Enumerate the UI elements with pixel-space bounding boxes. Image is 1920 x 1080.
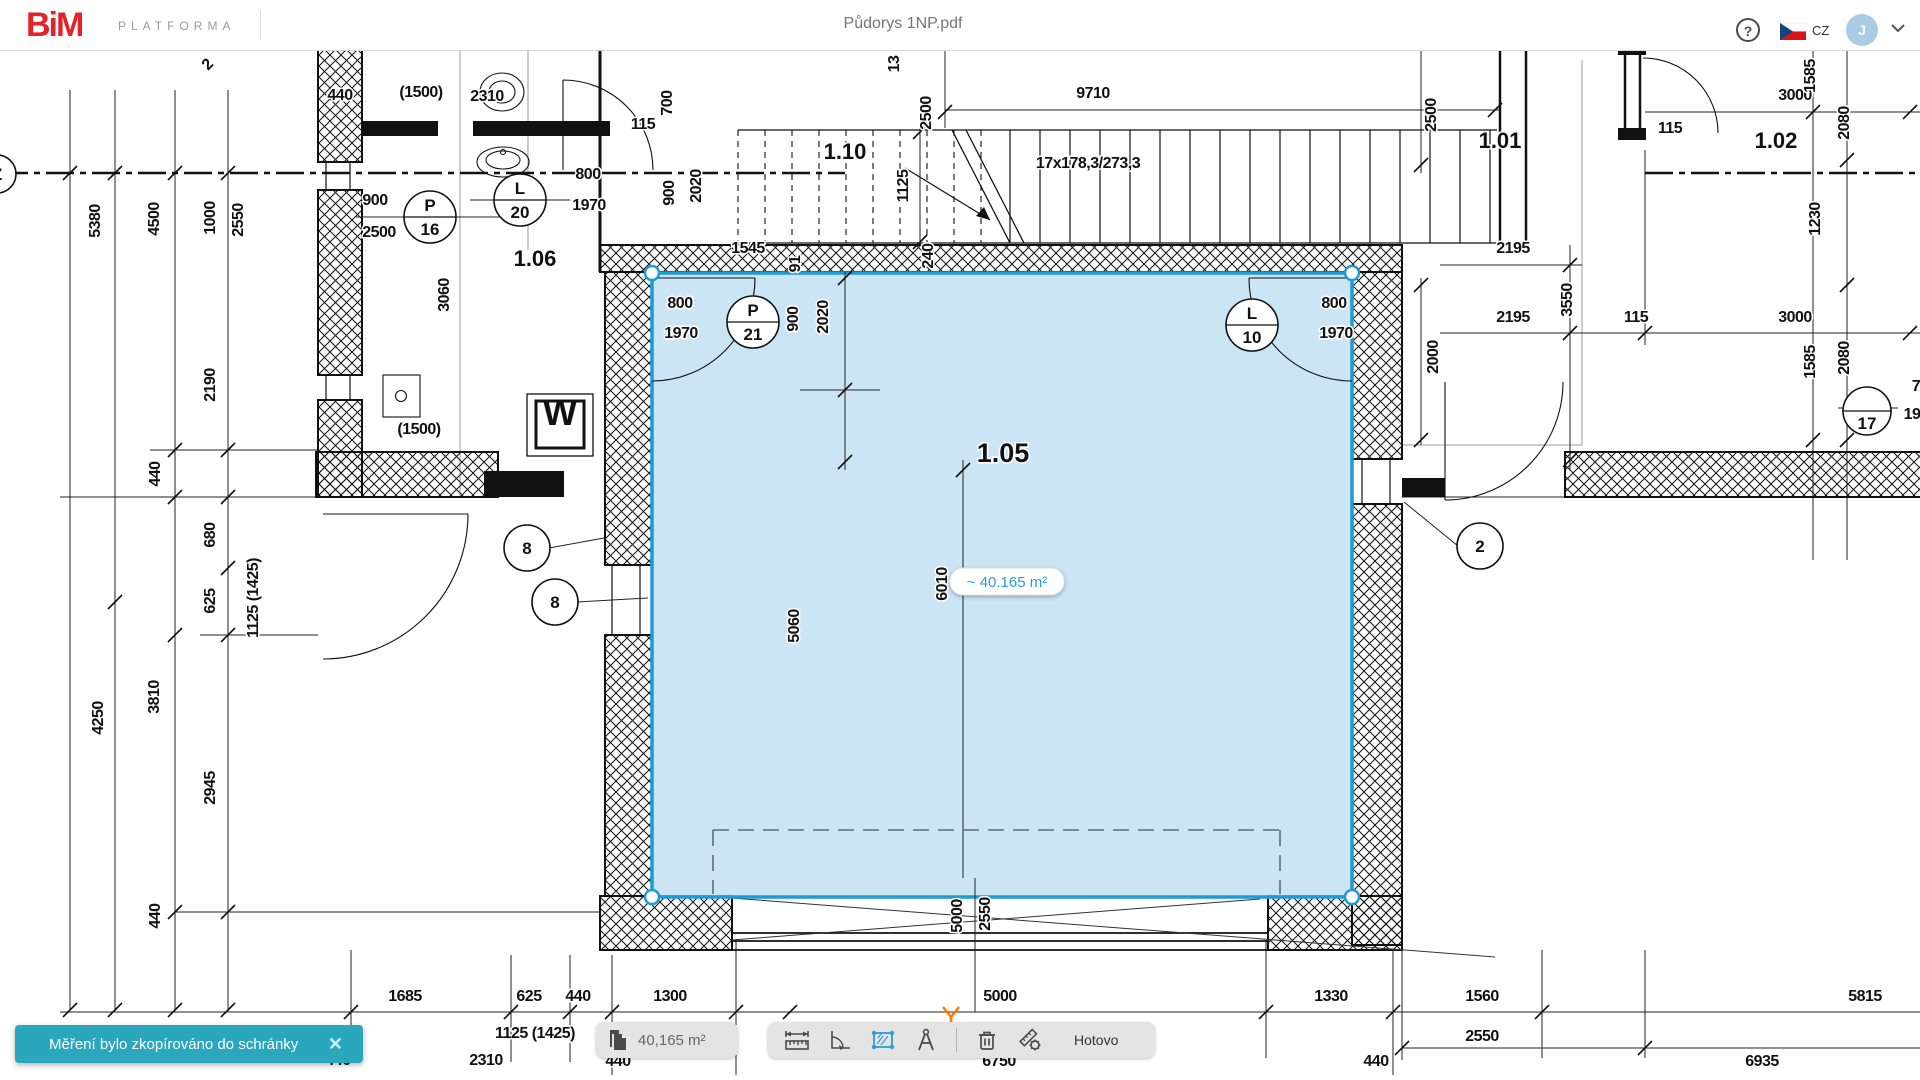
plan-label: W [543, 392, 577, 433]
plan-label: 2080 [1836, 341, 1853, 375]
selection-handle-bottomright[interactable] [1345, 890, 1359, 904]
plan-label: 19 [1904, 406, 1920, 423]
plan-label: 5000 [949, 899, 966, 933]
plan-label: Z [0, 165, 2, 184]
plan-label: 1000 [202, 201, 219, 235]
plan-label: 440 [147, 461, 164, 487]
plan-label: 9710 [1076, 85, 1110, 102]
toast-notification: Měření bylo zkopírováno do schránky ✕ [15, 1025, 363, 1063]
plan-label: 1125 [895, 169, 912, 202]
plan-label: 440 [1363, 1053, 1389, 1070]
plan-label: 1970 [1319, 325, 1353, 342]
plan-label: 440 [327, 87, 353, 104]
plan-label: 2020 [688, 169, 705, 203]
plan-label: 2550 [977, 897, 994, 931]
plan-label: 2500 [362, 224, 396, 241]
copy-icon[interactable] [608, 1029, 628, 1051]
plan-label: 800 [1321, 295, 1347, 312]
plan-label: 2945 [202, 771, 219, 805]
plan-label: 1125 (1425) [245, 558, 262, 638]
plan-label: L [515, 179, 525, 198]
plan-label: 2000 [1425, 340, 1442, 374]
plan-label: 91 [787, 255, 804, 272]
chevron-down-icon[interactable] [1890, 22, 1906, 34]
plan-label: 115 [1658, 120, 1683, 137]
plan-label: 240 [920, 243, 937, 269]
plan-label: 8 [522, 539, 531, 558]
plan-label: 2500 [918, 96, 935, 130]
plan-label: 1300 [653, 988, 687, 1005]
plan-label: 1.06 [514, 246, 557, 271]
toast-close-icon[interactable]: ✕ [322, 1034, 349, 1054]
measurement-value-pill: 40,165 m² [596, 1022, 738, 1058]
plan-label: 21 [744, 325, 763, 344]
plan-label: 2020 [815, 300, 832, 334]
plan-label: 3000 [1778, 309, 1812, 326]
plan-label: 1.10 [824, 139, 867, 164]
plan-label: 2500 [1423, 98, 1440, 132]
plan-label: 3060 [436, 278, 453, 312]
measure-toolbar: Hotovo [768, 1022, 1155, 1058]
plan-label: 1.05 [977, 438, 1030, 468]
toolbar-separator [956, 1028, 957, 1052]
selection-handle-bottomleft[interactable] [645, 890, 659, 904]
plan-label: 2 [199, 55, 217, 73]
plan-label: 1.01 [1479, 128, 1522, 153]
plan-label: 680 [202, 522, 219, 548]
document-title: Půdorys 1NP.pdf [844, 15, 963, 33]
plan-label: 10 [1243, 328, 1262, 347]
measurement-value: 40,165 m² [638, 1032, 706, 1049]
plan-label: 5060 [786, 609, 803, 643]
plan-label: 6010 [934, 567, 951, 601]
delete-icon[interactable] [974, 1027, 1000, 1053]
plan-label: 4500 [146, 202, 163, 236]
plan-label: 1585 [1802, 59, 1819, 93]
language-label[interactable]: CZ [1812, 23, 1829, 38]
user-avatar[interactable]: J [1846, 14, 1878, 46]
bim-logo-subtitle: PLATFORMA [118, 19, 235, 33]
plan-label: 20 [511, 203, 530, 222]
plan-label: P [747, 301, 758, 320]
measure-angle-icon[interactable] [827, 1027, 853, 1053]
plan-label: 440 [147, 903, 164, 929]
plan-label: 1970 [664, 325, 698, 342]
plan-label: 2190 [202, 368, 219, 402]
plan-label: 7 [1912, 378, 1920, 395]
plan-label: 3810 [146, 680, 163, 714]
plan-label: 5815 [1848, 988, 1882, 1005]
floorplan-canvas: 440(1500)2310115700900250080019709002020… [0, 0, 1920, 1080]
plan-label: 5380 [87, 204, 104, 238]
plan-label: 13 [886, 55, 903, 72]
plan-label: P [424, 196, 435, 215]
calibrate-icon[interactable] [1017, 1027, 1043, 1053]
plan-label: (1500) [399, 84, 442, 101]
plan-label: 625 [516, 988, 542, 1005]
plan-label: 700 [659, 90, 676, 116]
plan-label: 5000 [983, 988, 1017, 1005]
plan-label: 1230 [1807, 202, 1824, 236]
topbar-divider [260, 10, 261, 40]
bim-platforma-app: { "topbar": { "logo": "BiM", "logo_suffi… [0, 0, 1920, 1080]
reference-circle [0, 155, 16, 193]
plan-label: 2550 [1465, 1028, 1499, 1045]
plan-label: 1560 [1465, 988, 1499, 1005]
plan-label: 1545 [731, 240, 765, 257]
plan-label: 2 [1475, 537, 1484, 556]
plan-label: 1125 (1425) [495, 1025, 575, 1042]
selection-handle-topright[interactable] [1345, 266, 1359, 280]
plan-label: 8 [550, 593, 559, 612]
plan-label: 440 [565, 988, 591, 1005]
plan-label: 3550 [1559, 283, 1576, 317]
plan-label: (1500) [397, 421, 440, 438]
measure-distance-icon[interactable] [784, 1027, 810, 1053]
plan-label: 2310 [470, 88, 504, 105]
plan-label: L [1247, 304, 1257, 323]
plan-label: 1.02 [1755, 128, 1798, 153]
plan-label: 900 [661, 180, 678, 206]
done-button[interactable]: Hotovo [1068, 1031, 1124, 1049]
czech-flag-icon[interactable] [1780, 23, 1806, 40]
plan-label: 16 [421, 220, 440, 239]
plan-label: 800 [575, 166, 601, 183]
selection-handle-topleft[interactable] [645, 266, 659, 280]
area-tooltip: ~ 40.165 m² [950, 568, 1064, 595]
plan-label: 1685 [388, 988, 422, 1005]
plan-label: 1330 [1314, 988, 1348, 1005]
plan-label: 900 [785, 306, 802, 332]
plan-label: 625 [202, 588, 219, 614]
plan-label: 2195 [1496, 240, 1530, 257]
plan-label: 2195 [1496, 309, 1530, 326]
plan-label: 2550 [230, 203, 247, 237]
bim-logo: BiM [26, 6, 82, 45]
plan-label: 115 [631, 116, 656, 133]
plan-label: 4250 [90, 701, 107, 735]
plan-label: 900 [362, 192, 388, 209]
plan-label: 6935 [1745, 1053, 1779, 1070]
plan-label: 115 [1624, 309, 1649, 326]
help-icon[interactable]: ? [1736, 18, 1760, 42]
plan-label: 2080 [1836, 106, 1853, 140]
top-bar: BiM PLATFORMA Půdorys 1NP.pdf ? CZ J [0, 0, 1920, 51]
plan-label: 2310 [469, 1052, 503, 1069]
plan-label: 1970 [572, 197, 606, 214]
toast-message: Měření bylo zkopírováno do schránky [49, 1036, 298, 1053]
plan-label: 1585 [1802, 345, 1819, 379]
measure-area-icon[interactable] [870, 1027, 896, 1053]
compass-icon[interactable] [913, 1027, 939, 1053]
area-tooltip-value: ~ 40.165 m² [967, 574, 1047, 591]
plan-label: 800 [667, 295, 693, 312]
plan-label: 17 [1858, 414, 1877, 433]
plan-label: 17x178,3/273,3 [1036, 155, 1141, 172]
